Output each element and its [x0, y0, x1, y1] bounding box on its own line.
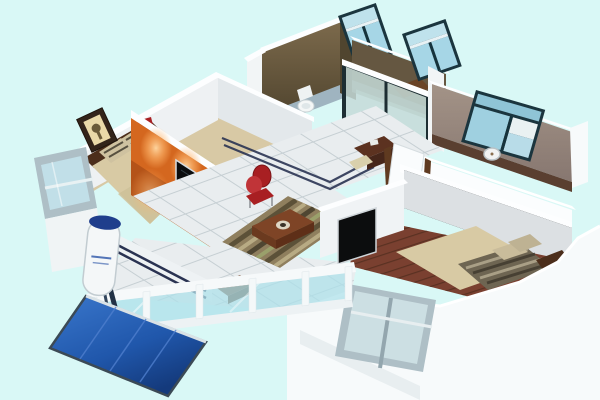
floorplan-render [0, 0, 600, 400]
wall-clock [484, 148, 500, 160]
railing-post [249, 278, 256, 313]
study-right-wall [570, 121, 588, 188]
floorplan-svg [0, 0, 600, 400]
railing-post [196, 284, 203, 319]
railing-post [302, 271, 309, 306]
spotlight-glow [140, 127, 172, 169]
railing-post [345, 266, 352, 301]
master-window-tilted [34, 147, 97, 219]
